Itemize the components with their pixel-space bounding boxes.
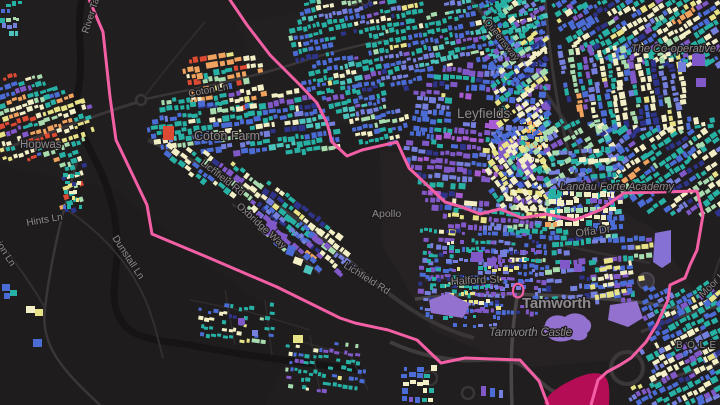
svg-text:Coton Farm: Coton Farm [194, 129, 260, 143]
svg-text:Leyfields: Leyfields [457, 106, 511, 121]
svg-text:Apollo: Apollo [372, 208, 401, 220]
svg-text:Tamworth: Tamworth [522, 295, 591, 312]
svg-text:BOLEH: BOLEH [676, 340, 720, 351]
svg-text:Hopwas: Hopwas [20, 139, 62, 151]
svg-text:Halford St: Halford St [451, 273, 500, 288]
svg-text:The Co-operative A: The Co-operative A [631, 43, 720, 55]
svg-text:Tamworth Castle: Tamworth Castle [489, 327, 572, 339]
svg-text:Landau Forte Academy: Landau Forte Academy [560, 181, 675, 193]
